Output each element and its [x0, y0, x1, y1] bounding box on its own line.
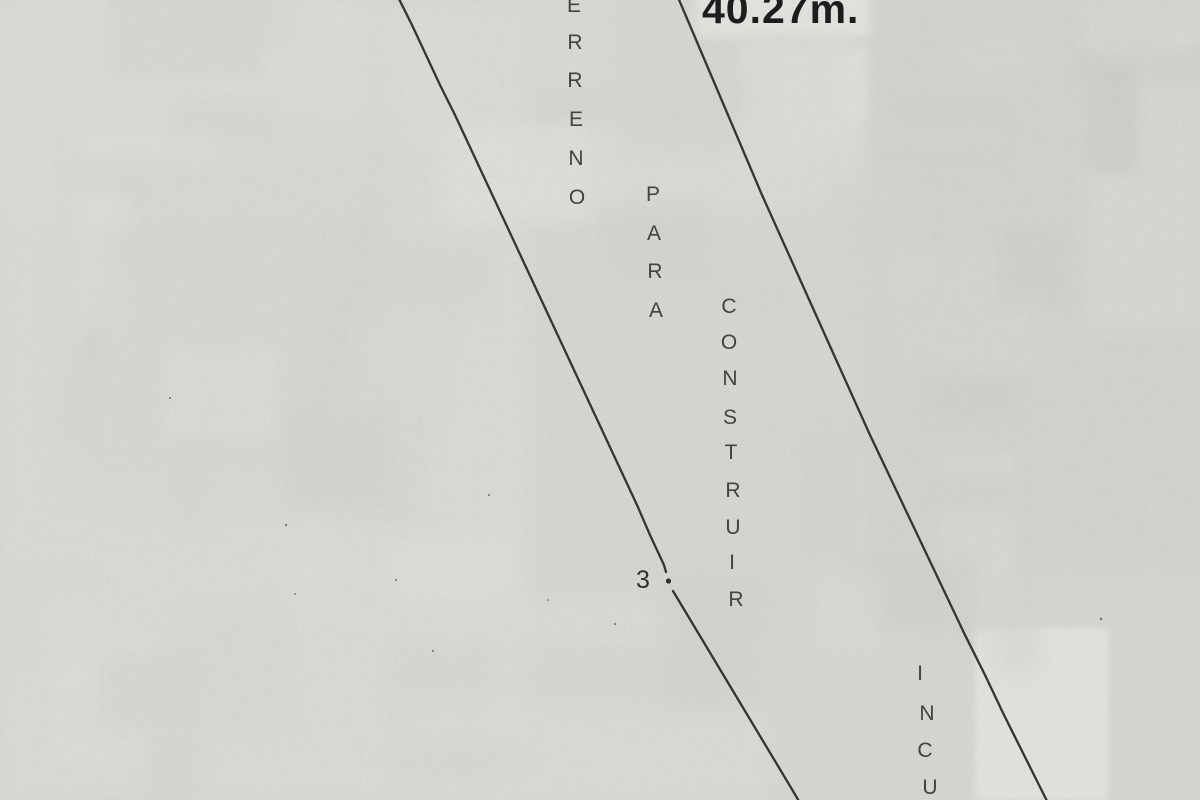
svg-text:O: O: [721, 331, 737, 354]
svg-text:T: T: [725, 441, 738, 464]
svg-text:A: A: [647, 222, 661, 245]
svg-text:C: C: [721, 295, 736, 318]
svg-text:R: R: [567, 31, 582, 54]
svg-text:P: P: [646, 183, 660, 206]
svg-text:S: S: [723, 406, 737, 429]
svg-text:N: N: [919, 702, 934, 725]
svg-text:3: 3: [636, 566, 650, 594]
svg-text:R: R: [728, 588, 743, 611]
svg-text:E: E: [569, 108, 583, 131]
svg-text:I: I: [917, 662, 923, 685]
svg-text:E: E: [567, 0, 581, 17]
svg-text:N: N: [722, 367, 737, 390]
svg-text:U: U: [725, 516, 740, 539]
svg-text:N: N: [568, 147, 583, 170]
svg-text:40.27m.: 40.27m.: [702, 0, 859, 32]
svg-text:O: O: [569, 186, 585, 209]
svg-text:A: A: [649, 299, 663, 322]
svg-text:U: U: [922, 776, 937, 799]
svg-text:R: R: [647, 260, 662, 283]
svg-text:C: C: [917, 739, 932, 762]
svg-text:R: R: [725, 479, 740, 502]
svg-text:R: R: [567, 69, 582, 92]
svg-text:I: I: [729, 551, 735, 574]
